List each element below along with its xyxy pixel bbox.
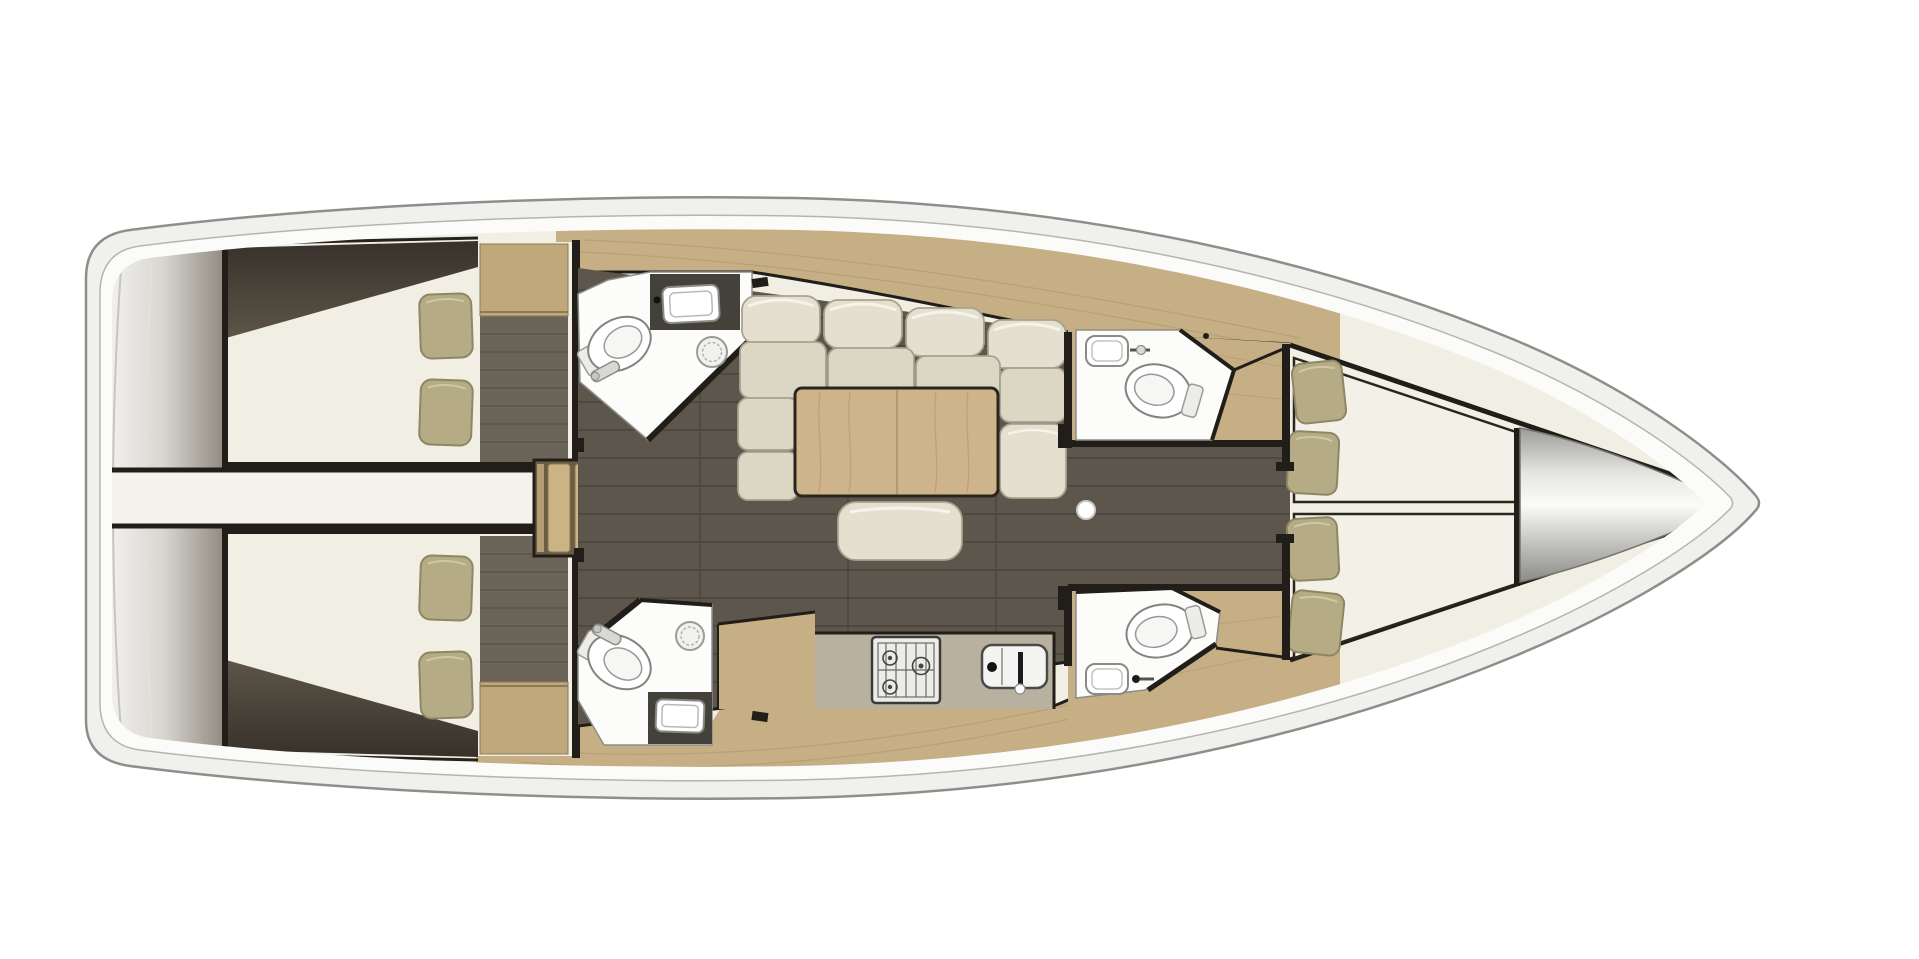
forward-cabin-door-hinge-bottom	[1276, 534, 1294, 543]
aft-cabin-port-pillow-1	[419, 293, 473, 359]
yacht-floorplan-diagram	[0, 0, 1919, 959]
sofa-right-return	[1000, 368, 1066, 498]
aft-cabin-port-floor	[480, 316, 568, 462]
yacht-floorplan-page	[0, 0, 1919, 959]
aft-cabin-starboard-wardrobe	[480, 682, 568, 754]
galley-faucet-base	[987, 662, 997, 672]
engine-compartment	[104, 468, 534, 528]
saloon-ottoman	[838, 502, 962, 560]
saloon-table	[795, 388, 998, 496]
galley-faucet-arm	[1018, 652, 1023, 685]
stair-tread-1	[548, 464, 570, 552]
aft-cabin-starboard-pillow-1	[419, 555, 473, 621]
fwd-head-port-corner-dot	[1203, 333, 1209, 339]
vberth-pillow-4	[1287, 589, 1345, 656]
vberth-pillow-2	[1286, 431, 1339, 496]
aft-cabin-starboard	[226, 528, 572, 760]
forward-cabin-door-hinge-top	[1276, 462, 1294, 471]
aft-head-port-shower-drain	[697, 337, 727, 367]
galley-stove	[872, 637, 940, 703]
galley-faucet-knob	[1015, 684, 1025, 694]
mast-post	[1077, 501, 1095, 519]
corridor-floor	[1068, 446, 1290, 588]
door-post-aft-top	[574, 438, 584, 452]
galley-wood-block	[718, 612, 815, 709]
forward-cabin-bulkhead-bottom	[1282, 540, 1290, 660]
forward-cabin-bulkhead-top	[1282, 344, 1290, 470]
aft-cabin-starboard-floor	[480, 536, 568, 682]
aft-cabin-port-pillow-2	[419, 379, 473, 446]
aft-cabin-port-wardrobe	[480, 244, 568, 316]
vberth-pillow-3	[1286, 517, 1339, 582]
aft-cabin-port	[226, 238, 572, 470]
door-post-corridor-top	[1058, 424, 1072, 448]
sofa-left-arm	[738, 398, 798, 500]
vberth-foot-bulkhead	[1514, 428, 1520, 586]
aft-head-starboard-basin	[655, 699, 704, 733]
aft-head-starboard-shower-drain	[676, 622, 704, 650]
galley-sink	[982, 645, 1047, 694]
aft-cabin-starboard-pillow-2	[419, 651, 473, 719]
vberth-pillow-1	[1291, 360, 1347, 425]
door-post-aft-bottom	[574, 548, 584, 562]
interior	[86, 180, 1780, 800]
aft-head-port-basin	[662, 285, 720, 324]
aft-head-port-faucet	[654, 297, 661, 304]
door-post-corridor-bottom	[1058, 586, 1072, 610]
